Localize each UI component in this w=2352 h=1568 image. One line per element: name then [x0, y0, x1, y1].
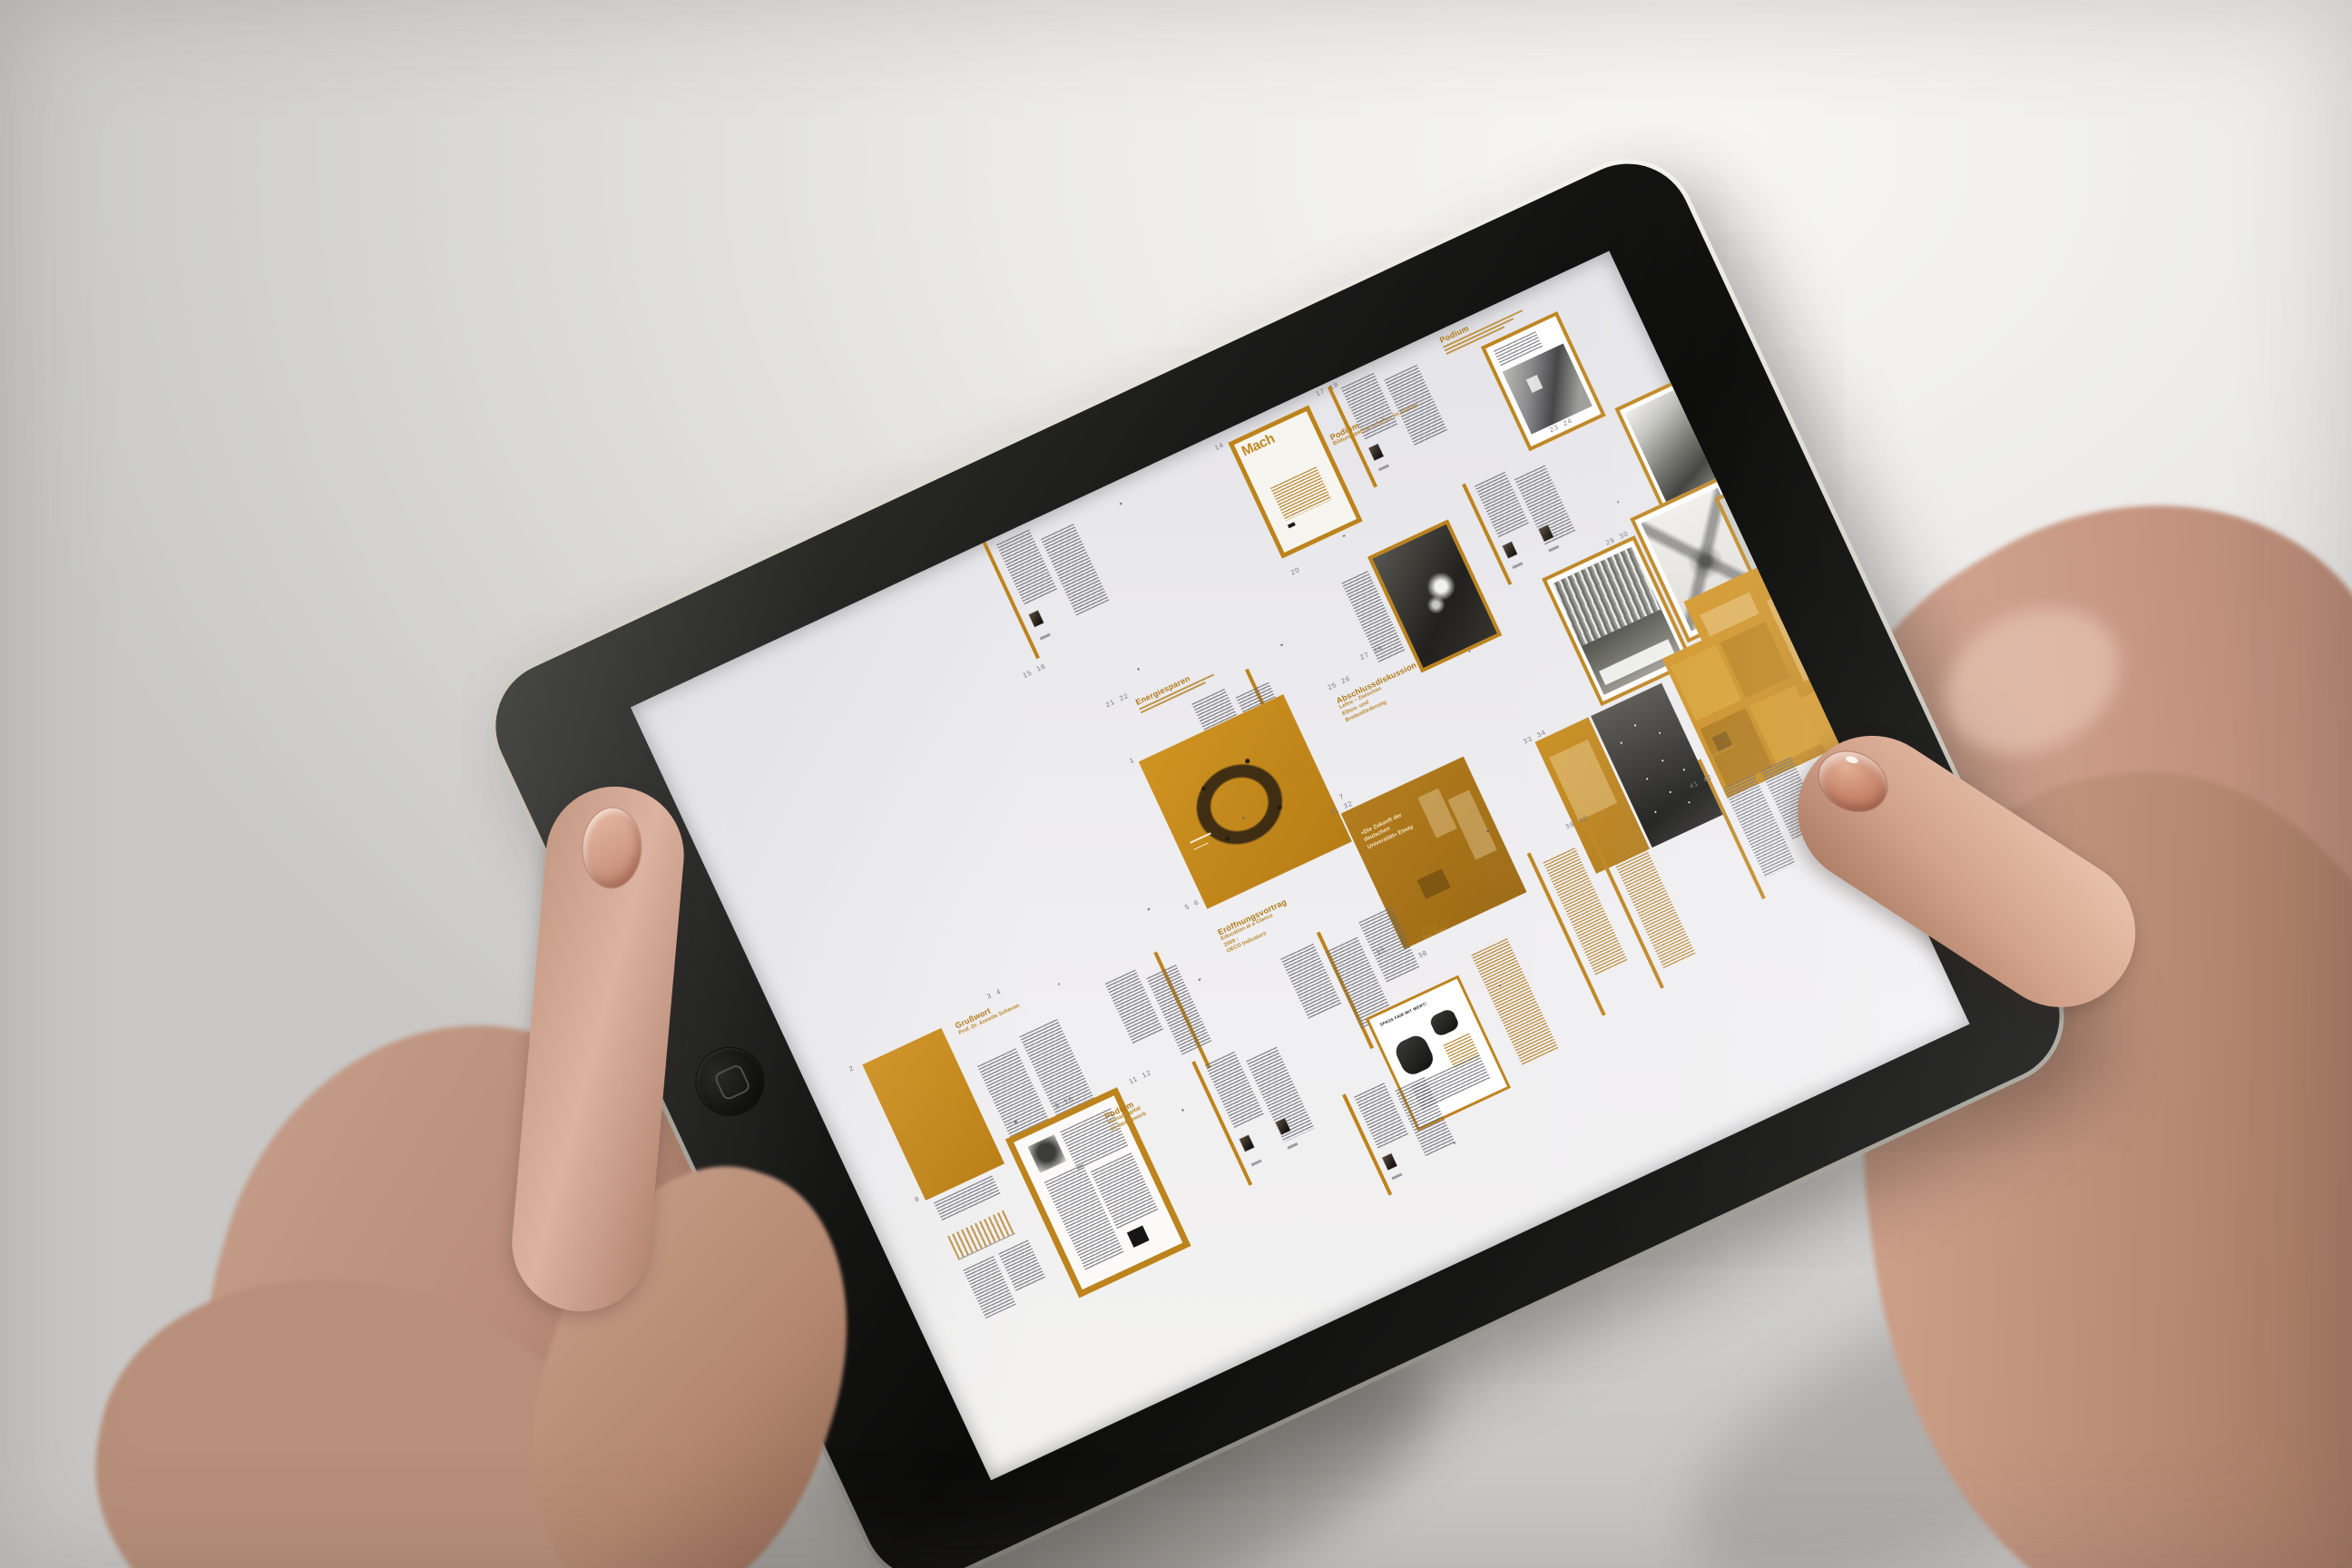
- star-dot: [1661, 759, 1664, 762]
- light-block: [1417, 788, 1457, 838]
- section-title: Grußwort: [954, 963, 1085, 1031]
- portrait-caption: [1040, 633, 1051, 641]
- news-photo: [1027, 1134, 1066, 1173]
- page-number: 8: [914, 1194, 921, 1203]
- star-dot: [1669, 790, 1671, 793]
- registration-dot: [1119, 502, 1122, 505]
- registration-dot: [1343, 534, 1346, 537]
- gold-text-block: [1270, 467, 1331, 521]
- star-dot: [1682, 769, 1685, 771]
- portrait-photo: [1240, 1135, 1254, 1151]
- registration-dot: [1468, 650, 1471, 652]
- portrait-caption: [1512, 562, 1523, 569]
- portrait-caption: [1250, 1160, 1261, 1167]
- dark-block: [1417, 868, 1451, 898]
- text-block: [1146, 965, 1212, 1055]
- star-dot: [1688, 801, 1690, 804]
- text-block: [1395, 1076, 1455, 1157]
- black-box: [1127, 1226, 1150, 1248]
- left-thumb-nail: [582, 807, 642, 888]
- page-number: 2: [848, 1063, 855, 1073]
- page-number: 5 6: [1183, 897, 1200, 911]
- home-button-icon: [713, 1063, 752, 1102]
- star-dot: [1645, 778, 1648, 780]
- section-subtitle: Prof. Dr. Annette Schavan: [958, 972, 1088, 1037]
- black-mark: [1288, 522, 1296, 528]
- spread-sp-15-16[interactable]: [983, 488, 1154, 659]
- portrait-caption: [1392, 1173, 1403, 1181]
- portrait-photo: [1382, 1153, 1396, 1170]
- portrait-photo: [1368, 445, 1383, 461]
- white-box: [1756, 507, 1798, 549]
- page-number: 3 4: [985, 987, 1003, 1001]
- registration-dot: [1147, 907, 1150, 910]
- registration-dot: [1616, 501, 1619, 504]
- photo-caption-light: [1193, 842, 1209, 850]
- page-number: 21 22: [1104, 691, 1130, 710]
- text-block: [1384, 365, 1447, 446]
- registration-dot: [1280, 643, 1283, 646]
- registration-dot: [1137, 668, 1140, 671]
- text-block: [1041, 524, 1110, 615]
- page-number: 14: [1213, 441, 1225, 453]
- photo-scene: MachPodiumBildungspartnerschaften im Wan…: [0, 0, 2352, 1568]
- portrait-caption: [1378, 464, 1389, 471]
- star-dot: [1620, 741, 1622, 744]
- portrait-caption: [1548, 544, 1559, 552]
- home-button[interactable]: [685, 1037, 774, 1126]
- portrait-photo: [1503, 542, 1517, 558]
- portrait-photo: [1029, 611, 1044, 627]
- page-number: 25 26: [1327, 673, 1352, 691]
- star-dot: [1633, 724, 1636, 727]
- gold-text-block: [1279, 758, 1310, 786]
- page-number: 20: [1289, 565, 1301, 577]
- essay-title: «Die Zukunft der deutschen Universität» …: [1360, 806, 1424, 851]
- car-photo: [1428, 1008, 1460, 1038]
- page-number: 1: [1128, 756, 1135, 765]
- portrait-caption: [1288, 1142, 1298, 1150]
- cover-title: Mach: [1234, 411, 1313, 460]
- star-dot: [1659, 731, 1661, 734]
- page-number: 15 16: [1022, 661, 1047, 680]
- page-number: 38: [1416, 948, 1428, 960]
